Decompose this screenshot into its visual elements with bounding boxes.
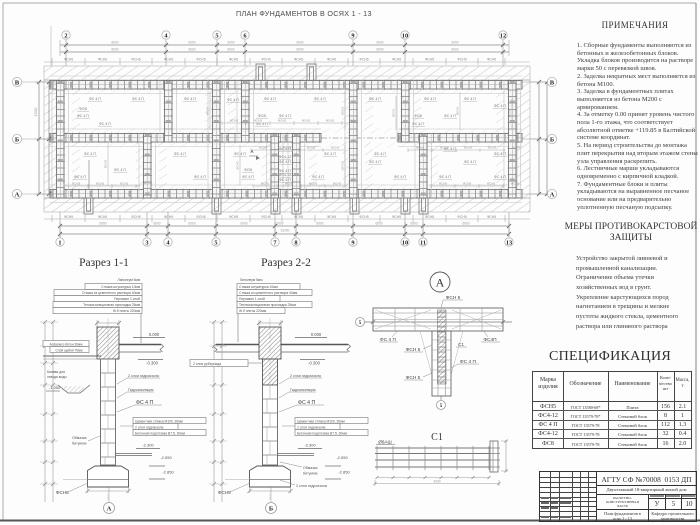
svg-text:ФСВ: ФСВ bbox=[79, 107, 87, 111]
svg-text:ФСН5: ФСН5 bbox=[359, 58, 368, 62]
svg-text:ФСН5: ФСН5 bbox=[487, 215, 496, 219]
svg-text:ФС4-12: ФС4-12 bbox=[279, 173, 292, 177]
svg-text:ФСН5: ФСН5 bbox=[196, 215, 205, 219]
svg-text:ФС 4 П: ФС 4 П bbox=[242, 175, 254, 179]
svg-text:ФСН5: ФСН5 bbox=[229, 215, 238, 219]
svg-text:ФСН5: ФСН5 bbox=[104, 160, 108, 169]
svg-text:битумом: битумом bbox=[72, 442, 87, 446]
svg-text:6000: 6000 bbox=[240, 222, 247, 226]
svg-text:3: 3 bbox=[145, 239, 148, 246]
svg-text:ФС 4 П: ФС 4 П bbox=[494, 104, 506, 108]
svg-text:-2.300: -2.300 bbox=[142, 443, 154, 448]
svg-text:ФСН5: ФСН5 bbox=[331, 146, 340, 150]
svg-text:-0.300: -0.300 bbox=[146, 361, 159, 366]
svg-text:6000: 6000 bbox=[462, 222, 469, 226]
svg-text:ФСН5: ФСН5 bbox=[425, 215, 434, 219]
svg-text:10: 10 bbox=[402, 32, 408, 39]
svg-text:9: 9 bbox=[351, 239, 354, 246]
svg-text:Разрез 1-1: Разрез 1-1 bbox=[79, 257, 129, 269]
svg-text:Линолеум 5мм: Линолеум 5мм bbox=[118, 278, 141, 282]
svg-text:ФС 4 П: ФС 4 П bbox=[84, 152, 96, 156]
svg-text:А: А bbox=[436, 276, 445, 290]
svg-text:ФСВ: ФСВ bbox=[244, 168, 252, 172]
svg-text:Б: Б bbox=[269, 505, 273, 512]
svg-text:ФСН5: ФСН5 bbox=[512, 146, 521, 150]
svg-text:ФС 4 П: ФС 4 П bbox=[314, 97, 326, 101]
svg-text:ФСН5: ФСН5 bbox=[416, 146, 425, 150]
svg-text:6000: 6000 bbox=[375, 222, 382, 226]
svg-text:Ж.б плиты 220мм: Ж.б плиты 220мм bbox=[239, 309, 267, 313]
svg-text:6000: 6000 bbox=[451, 41, 458, 45]
svg-text:6000: 6000 bbox=[188, 48, 195, 52]
svg-text:ФСН5: ФСН5 bbox=[278, 119, 287, 123]
svg-text:Цементная стяжка М100, 30мм: Цементная стяжка М100, 30мм bbox=[135, 419, 183, 423]
svg-text:Теплоизоляционная прокладка 25: Теплоизоляционная прокладка 25мм bbox=[239, 303, 297, 307]
svg-text:ФС 4 П: ФС 4 П bbox=[494, 152, 506, 156]
svg-text:А: А bbox=[15, 191, 20, 198]
svg-text:ФСН5: ФСН5 bbox=[463, 182, 472, 186]
svg-text:ФСН5: ФСН5 bbox=[487, 58, 496, 62]
svg-text:6000: 6000 bbox=[99, 222, 106, 226]
svg-text:ФСН5: ФСН5 bbox=[261, 58, 270, 62]
svg-text:ФСН5: ФСН5 bbox=[164, 215, 173, 219]
svg-text:-2.550: -2.550 bbox=[336, 455, 348, 460]
svg-text:Ø6АШ: Ø6АШ bbox=[378, 440, 391, 445]
svg-text:ФСН5: ФСН5 bbox=[302, 119, 311, 123]
svg-text:6000: 6000 bbox=[111, 48, 118, 52]
svg-text:ФСН5: ФСН5 bbox=[307, 146, 316, 150]
svg-text:ФС 4 П: ФС 4 П bbox=[194, 175, 206, 179]
svg-text:ФСН5: ФСН5 bbox=[64, 58, 73, 62]
svg-text:ФС 4 П: ФС 4 П bbox=[394, 175, 406, 179]
svg-text:Гидроизоляция: Гидроизоляция bbox=[128, 388, 153, 392]
svg-text:6000: 6000 bbox=[227, 41, 234, 45]
svg-text:2: 2 bbox=[64, 32, 67, 39]
svg-text:4200: 4200 bbox=[433, 480, 440, 484]
svg-text:12000: 12000 bbox=[34, 107, 38, 116]
svg-text:Бетонная подготовка В7.5, 30мм: Бетонная подготовка В7.5, 30мм bbox=[297, 431, 348, 435]
svg-text:0.000: 0.000 bbox=[311, 332, 322, 337]
svg-text:6000: 6000 bbox=[316, 222, 323, 226]
svg-text:С1: С1 bbox=[431, 432, 443, 443]
svg-text:Пергамин 1 слой: Пергамин 1 слой bbox=[114, 297, 140, 301]
svg-text:А: А bbox=[107, 505, 112, 512]
svg-text:ФСН5: ФСН5 bbox=[131, 215, 140, 219]
svg-text:2 слоя рубероида: 2 слоя рубероида bbox=[193, 362, 221, 366]
svg-text:ФСН5: ФСН5 bbox=[285, 182, 294, 186]
svg-text:ФСН5: ФСН5 bbox=[236, 161, 240, 170]
svg-text:ФС 4 П: ФС 4 П bbox=[174, 152, 186, 156]
svg-text:2 слоя гидроизола: 2 слоя гидроизола bbox=[290, 374, 321, 378]
svg-text:-2.550: -2.550 bbox=[160, 455, 172, 460]
svg-text:8: 8 bbox=[294, 239, 297, 246]
svg-text:6000: 6000 bbox=[296, 41, 303, 45]
svg-text:ФСН5: ФСН5 bbox=[457, 58, 466, 62]
svg-text:ФСН5: ФСН5 bbox=[230, 119, 239, 123]
svg-text:ФСН5: ФСН5 bbox=[283, 146, 292, 150]
svg-text:ФСН5: ФСН5 bbox=[56, 490, 69, 495]
svg-text:0.000: 0.000 bbox=[149, 332, 160, 337]
svg-text:ФСН5: ФСН5 bbox=[488, 146, 497, 150]
svg-text:ФСН5: ФСН5 bbox=[229, 58, 238, 62]
svg-text:Бетонная подготовка В7.5, 30мм: Бетонная подготовка В7.5, 30мм bbox=[135, 431, 186, 435]
svg-text:ФСН5: ФСН5 bbox=[464, 146, 473, 150]
svg-text:ФС 4 П: ФС 4 П bbox=[369, 97, 381, 101]
svg-text:ФСН5: ФСН5 bbox=[392, 109, 396, 118]
svg-text:ФСН5: ФСН5 bbox=[456, 107, 460, 116]
svg-text:ФС 4 П: ФС 4 П bbox=[369, 160, 381, 164]
svg-text:ФСН5: ФСН5 bbox=[218, 490, 231, 495]
svg-text:2 слоя гидроизола: 2 слоя гидроизола bbox=[128, 374, 159, 378]
svg-text:ФСН5: ФСН5 bbox=[341, 107, 345, 116]
svg-text:Стяжка из цементного раствора: Стяжка из цементного раствора 40мм bbox=[239, 291, 298, 295]
svg-text:ФСН5: ФСН5 bbox=[72, 182, 81, 186]
svg-text:5: 5 bbox=[215, 32, 218, 39]
svg-text:12: 12 bbox=[500, 32, 506, 39]
svg-text:ФСН5: ФСН5 bbox=[144, 182, 153, 186]
svg-text:Цементная стяжка М100, 30мм: Цементная стяжка М100, 30мм bbox=[297, 419, 345, 423]
svg-text:ФС 4 П: ФС 4 П bbox=[494, 175, 506, 179]
svg-text:6000: 6000 bbox=[296, 48, 303, 52]
svg-text:ФС 4 П: ФС 4 П bbox=[324, 152, 336, 156]
svg-text:6000: 6000 bbox=[451, 48, 458, 52]
svg-text:ФС 4 П: ФС 4 П bbox=[279, 114, 291, 118]
svg-text:ФСН5: ФСН5 bbox=[261, 182, 270, 186]
svg-text:ФСН5: ФСН5 bbox=[440, 146, 449, 150]
svg-text:ФСН5: ФСН5 bbox=[98, 58, 107, 62]
svg-text:ФС 4 П: ФС 4 П bbox=[279, 160, 291, 164]
svg-text:ФС4-12: ФС4-12 bbox=[279, 155, 292, 159]
svg-text:6000: 6000 bbox=[111, 41, 118, 45]
svg-text:6000: 6000 bbox=[376, 48, 383, 52]
svg-text:Б: Б bbox=[550, 136, 555, 143]
svg-text:ФСН5: ФСН5 bbox=[327, 215, 336, 219]
svg-text:ФС 4 П: ФС 4 П bbox=[227, 98, 239, 102]
svg-text:Стяжка штукатурка 10мм: Стяжка штукатурка 10мм bbox=[239, 285, 278, 289]
svg-text:10: 10 bbox=[402, 239, 408, 246]
svg-text:ФСН5: ФСН5 bbox=[259, 146, 268, 150]
svg-text:Обмазка: Обмазка bbox=[72, 436, 87, 440]
svg-text:ФСН5: ФСН5 bbox=[326, 119, 335, 123]
svg-text:ФС 4 П: ФС 4 П bbox=[464, 97, 476, 101]
svg-text:6000: 6000 bbox=[376, 41, 383, 45]
svg-text:ФС 4 П: ФС 4 П bbox=[89, 97, 101, 101]
svg-text:Стяжка штукатурка 10мм: Стяжка штукатурка 10мм bbox=[101, 285, 140, 289]
svg-text:ФСН5: ФСН5 bbox=[327, 58, 336, 62]
svg-text:6000: 6000 bbox=[188, 41, 195, 45]
svg-text:Канава для: Канава для bbox=[47, 370, 65, 374]
svg-text:ФС 4 П: ФС 4 П bbox=[439, 175, 451, 179]
svg-text:5: 5 bbox=[214, 239, 217, 246]
svg-text:Ж.б плиты 220мм: Ж.б плиты 220мм bbox=[113, 309, 141, 313]
svg-text:6000: 6000 bbox=[153, 222, 160, 226]
svg-text:ФСН5: ФСН5 bbox=[511, 182, 520, 186]
svg-text:Разрез 2-2: Разрез 2-2 bbox=[261, 257, 311, 269]
svg-text:ФСН5: ФСН5 bbox=[457, 215, 466, 219]
svg-text:Слой щебня 70мм: Слой щебня 70мм bbox=[55, 348, 82, 352]
svg-text:51000: 51000 bbox=[281, 229, 290, 233]
svg-text:ФСН5: ФСН5 bbox=[164, 58, 173, 62]
svg-text:2 слоя гидроизола: 2 слоя гидроизола bbox=[135, 425, 164, 429]
svg-text:Обмазка: Обмазка bbox=[303, 466, 318, 470]
svg-text:-0.300: -0.300 bbox=[308, 361, 321, 366]
svg-text:13: 13 bbox=[506, 239, 512, 246]
svg-text:ФСН5: ФСН5 bbox=[359, 215, 368, 219]
svg-text:А: А bbox=[550, 191, 555, 198]
svg-text:9: 9 bbox=[351, 32, 354, 39]
svg-text:ФС 4 П: ФС 4 П bbox=[184, 97, 196, 101]
svg-text:ФСВ: ФСВ bbox=[414, 114, 422, 118]
svg-text:-2.300: -2.300 bbox=[304, 443, 316, 448]
svg-text:6000: 6000 bbox=[188, 222, 195, 226]
svg-text:Асфальто-бетон 30мм: Асфальто-бетон 30мм bbox=[50, 342, 83, 346]
svg-text:ФС 4 П: ФС 4 П bbox=[256, 122, 268, 126]
svg-text:ФСН5: ФСН5 bbox=[392, 215, 401, 219]
svg-text:11: 11 bbox=[420, 239, 426, 246]
svg-text:Пергамин 1 слой: Пергамин 1 слой bbox=[239, 297, 265, 301]
svg-text:ФС 4 П: ФС 4 П bbox=[412, 122, 424, 126]
svg-text:ФС 4 П: ФС 4 П bbox=[74, 175, 86, 179]
svg-text:ФСН5: ФСН5 bbox=[333, 182, 342, 186]
svg-text:битумом: битумом bbox=[303, 472, 318, 476]
svg-text:1: 1 bbox=[58, 239, 61, 246]
svg-text:ФС 4 П: ФС 4 П bbox=[77, 114, 89, 118]
svg-text:ФС 4 П: ФС 4 П bbox=[374, 152, 386, 156]
svg-text:ФСН5: ФСН5 bbox=[254, 119, 263, 123]
svg-text:ФС 4 П: ФС 4 П bbox=[132, 97, 144, 101]
svg-text:Б: Б bbox=[15, 136, 20, 143]
svg-text:ФСН5: ФСН5 bbox=[392, 58, 401, 62]
svg-text:ФСН5: ФСН5 bbox=[439, 182, 448, 186]
svg-text:ФСН5: ФСН5 bbox=[309, 182, 318, 186]
svg-text:Теплоизоляционная прокладка 25: Теплоизоляционная прокладка 25мм bbox=[83, 303, 141, 307]
svg-text:Гидроизоляция: Гидроизоляция bbox=[290, 388, 315, 392]
svg-text:ФСН5: ФСН5 bbox=[294, 58, 303, 62]
svg-text:ФС 4 П: ФС 4 П bbox=[264, 97, 276, 101]
svg-text:2 слоя гидроизола: 2 слоя гидроизола bbox=[296, 484, 327, 488]
svg-text:ФСН5: ФСН5 bbox=[294, 215, 303, 219]
svg-text:ФС 4 П: ФС 4 П bbox=[114, 168, 126, 172]
svg-text:ФСН5: ФСН5 bbox=[508, 109, 512, 118]
svg-text:ФСН5: ФСН5 bbox=[425, 58, 434, 62]
svg-text:ФС 4 П: ФС 4 П bbox=[424, 97, 436, 101]
svg-text:ФС 4 П: ФС 4 П bbox=[99, 122, 111, 126]
svg-text:ФСН5: ФСН5 bbox=[206, 107, 210, 116]
svg-text:ФСН5: ФСН5 bbox=[261, 215, 270, 219]
svg-text:отвода воды: отвода воды bbox=[47, 375, 67, 379]
svg-text:2 слоя гидроизола: 2 слоя гидроизола bbox=[297, 425, 326, 429]
svg-text:С1: С1 bbox=[458, 342, 464, 347]
svg-text:ФС 4 П: ФС 4 П bbox=[312, 175, 324, 179]
svg-text:ФСВ: ФСВ bbox=[258, 114, 266, 118]
svg-text:ФСН5: ФСН5 bbox=[131, 58, 140, 62]
svg-text:ФСН5: ФСН5 bbox=[120, 182, 129, 186]
svg-text:ФСН5: ФСН5 bbox=[98, 215, 107, 219]
svg-text:В: В bbox=[15, 79, 20, 86]
svg-text:ФСН5: ФСН5 bbox=[487, 182, 496, 186]
svg-text:ФСН5: ФСН5 bbox=[341, 161, 345, 170]
svg-text:В: В bbox=[550, 79, 555, 86]
svg-text:Линолеум 5мм: Линолеум 5мм bbox=[240, 278, 263, 282]
svg-text:-2.850: -2.850 bbox=[162, 470, 174, 475]
svg-text:ФСН5: ФСН5 bbox=[196, 58, 205, 62]
svg-text:ФС 4 П: ФС 4 П bbox=[464, 160, 476, 164]
svg-text:Стяжка из цементного раствора: Стяжка из цементного раствора 40мм bbox=[82, 291, 141, 295]
svg-text:6000: 6000 bbox=[276, 222, 283, 226]
svg-text:-2.850: -2.850 bbox=[338, 470, 350, 475]
svg-text:ФСН5: ФСН5 bbox=[64, 215, 73, 219]
svg-text:ФСН5: ФСН5 bbox=[96, 182, 105, 186]
svg-text:6000: 6000 bbox=[227, 48, 234, 52]
svg-text:6000: 6000 bbox=[410, 222, 417, 226]
svg-text:ФСН5: ФСН5 bbox=[350, 119, 359, 123]
